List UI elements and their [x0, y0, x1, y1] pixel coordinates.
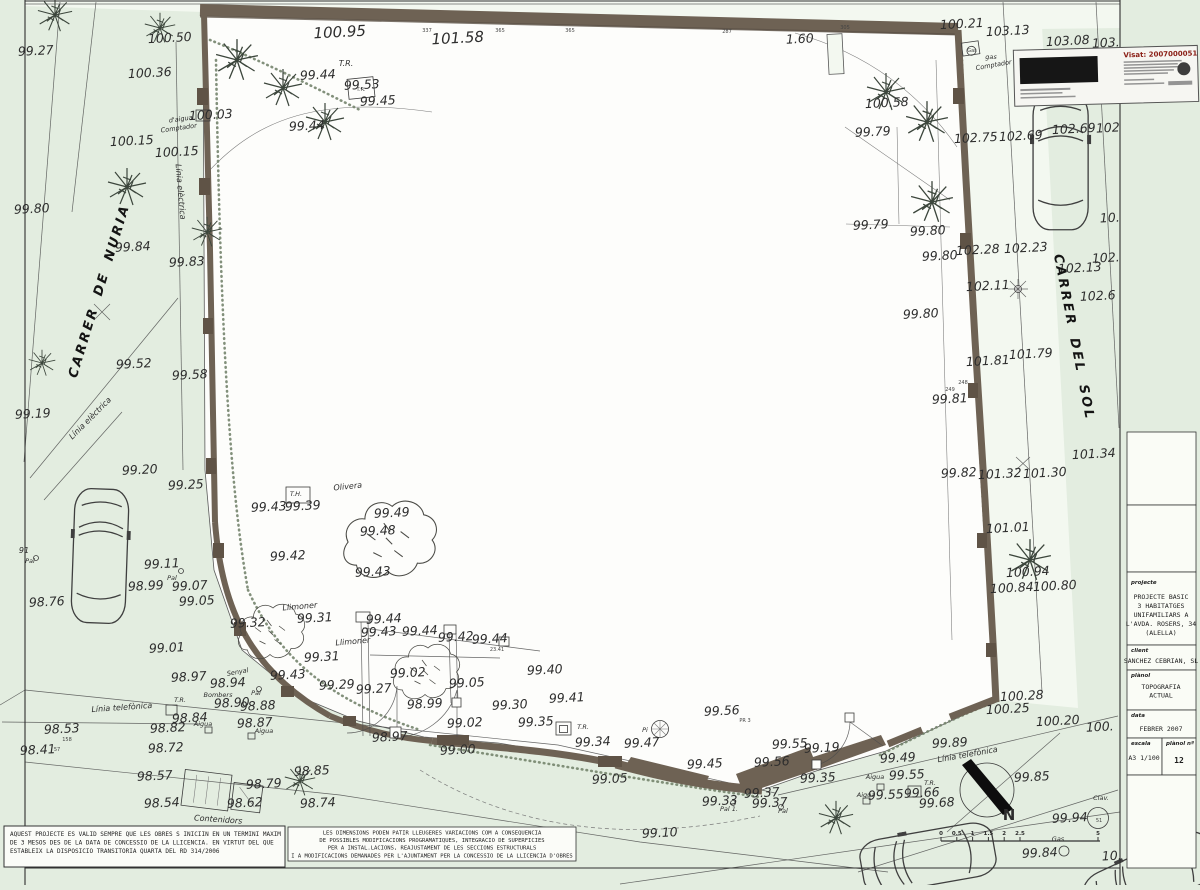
scale-tick-label: 2 — [1002, 831, 1006, 837]
elevation-label: 101.79 — [1009, 345, 1054, 362]
elevation-label: 99.05 — [178, 592, 215, 609]
elevation-label: 99.29 — [318, 676, 355, 693]
elevation-label: 99.07 — [171, 577, 208, 594]
feature-label: T.R. — [174, 696, 186, 704]
elevation-label: 100.58 — [865, 94, 910, 111]
gate-post — [845, 713, 854, 722]
elevation-label: 101.01 — [986, 519, 1030, 536]
elevation-label: 98.97 — [170, 668, 207, 685]
elevation-label: 99.80 — [921, 247, 958, 264]
elevation-label: 99.11 — [143, 555, 180, 572]
point-id-label: 305 — [840, 25, 850, 31]
elevation-label: 98.97 — [371, 728, 408, 745]
field-value-client: SANCHEZ CEBRIAN, SL — [1124, 657, 1198, 665]
elevation-label: 99.05 — [591, 770, 628, 787]
elevation-label: 102.6 — [1079, 287, 1116, 304]
point-id-label: 248 — [958, 380, 968, 386]
feature-label: T.H. — [290, 490, 302, 498]
elevation-label: 99.43 — [360, 623, 397, 640]
elevation-label: 99.32 — [229, 614, 266, 631]
elevation-label: 99.55 — [771, 735, 808, 752]
feature-label: Gas — [1052, 835, 1065, 843]
wall-gate-stub — [827, 34, 844, 75]
elevation-label: 99.80 — [902, 305, 939, 322]
scale-tick-label: 1 — [971, 831, 975, 837]
point-id-label: T.R. — [356, 87, 366, 93]
note-validity: AQUEST PROJECTE ES VALID SEMPRE QUE LES … — [4, 826, 285, 867]
scale-tick-label: 0.5 — [952, 831, 962, 837]
elevation-label: 101.30 — [1023, 464, 1068, 481]
elevation-label: 99.34 — [574, 733, 611, 750]
elevation-label: 99.79 — [854, 123, 891, 140]
elevation-label: 99.19 — [14, 405, 51, 422]
elevation-label: 99.42 — [437, 628, 474, 645]
elevation-label: 99.44 — [288, 117, 325, 134]
elevation-label: 100.20 — [1036, 712, 1081, 729]
elevation-label: 101.32 — [978, 465, 1023, 482]
elevation-label: 101.81 — [966, 352, 1010, 369]
feature-label: Pal — [167, 574, 177, 582]
scale-tick-label: 1.5 — [984, 831, 994, 837]
elevation-label: 98.72 — [147, 739, 184, 756]
elevation-label: 99.79 — [852, 216, 889, 233]
elevation-label: 99.43 — [250, 498, 287, 515]
visat-stamp: Visat: 2007000051 — [1013, 45, 1198, 106]
elevation-label: 99.89 — [931, 734, 968, 751]
elevation-label: 99.00 — [439, 741, 476, 758]
elevation-label: 99.27 — [355, 680, 392, 697]
elevation-label: 100.50 — [148, 29, 193, 46]
point-id-label: 287 — [722, 29, 732, 35]
elevation-label: 99.56 — [703, 702, 740, 719]
elevation-label: 101.58 — [431, 28, 484, 49]
elevation-label: 99.84 — [1021, 844, 1058, 861]
elevation-label: 98.41 — [19, 741, 56, 758]
elevation-label: 10. — [1101, 847, 1122, 863]
elevation-label: 98.82 — [149, 719, 186, 736]
elevation-label: 99.02 — [389, 664, 426, 681]
field-value-planol-num: 12 — [1174, 756, 1184, 765]
elevation-label: 99.05 — [448, 674, 485, 691]
point-id-label: 57 — [54, 747, 60, 753]
elevation-label: 100.36 — [128, 64, 173, 81]
elevation-label: 102.11 — [966, 277, 1010, 294]
field-label-client: client — [1131, 648, 1149, 654]
elevation-label: 98.99 — [406, 695, 443, 712]
elevation-label: 100.95 — [313, 22, 366, 43]
elevation-label: 102.69 — [1052, 120, 1097, 137]
elevation-label: 99.49 — [373, 504, 410, 521]
scale-tick-label: 5 — [1096, 831, 1100, 837]
elevation-label: 99.44 — [299, 66, 336, 83]
elevation-label: 100.94 — [1006, 563, 1051, 580]
elevation-label: 99.27 — [17, 42, 54, 59]
elevation-label: 102. — [1091, 249, 1120, 265]
elevation-label: 99.56 — [753, 753, 790, 770]
point-id-label: 249 — [945, 387, 955, 393]
elevation-label: 99.44 — [401, 622, 438, 639]
elevation-label: 103. — [1091, 34, 1120, 50]
elevation-label: 99.40 — [526, 661, 563, 678]
elevation-label: 99.52 — [115, 355, 152, 372]
elevation-label: 100.03 — [189, 106, 234, 123]
elevation-label: 102.75 — [954, 129, 999, 146]
feature-label: Pal — [25, 557, 35, 565]
feature-label: Pal — [778, 807, 788, 815]
elevation-label: 102.23 — [1004, 239, 1049, 256]
barcode — [1020, 56, 1099, 84]
elevation-label: 99.30 — [491, 696, 528, 713]
field-label-planol-num: plànol nº — [1165, 740, 1194, 747]
elevation-label: 103.08 — [1046, 32, 1091, 49]
elevation-label: 10. — [1099, 209, 1120, 225]
field-label-data: data — [1131, 713, 1145, 719]
elevation-label: 98.53 — [43, 720, 80, 737]
feature-label: T.R. — [339, 59, 354, 68]
elevation-label: 98.62 — [226, 794, 263, 811]
elevation-label: 99.20 — [121, 461, 158, 478]
elevation-label: 1.60 — [785, 30, 814, 46]
point-id-label: 365 — [565, 28, 575, 34]
feature-label: Pal 1. — [720, 805, 738, 813]
note-dimensions: LES DIMENSIONS PODEN PATIR LLEUGERES VAR… — [288, 827, 576, 861]
site-plan: N 00.511.522.55 AQUEST PROJECTE ES VALID… — [0, 0, 1200, 885]
elevation-label: 102.28 — [956, 241, 1001, 258]
point-id-label: PR 3 — [739, 718, 750, 724]
elevation-label: 99.55 — [888, 766, 925, 783]
feature-label: Aigua — [254, 727, 273, 735]
north-label: N — [1003, 806, 1016, 824]
field-label-planol: plànol — [1130, 672, 1150, 679]
elevation-label: 99.43 — [354, 563, 391, 580]
feature-label: T.R. — [924, 779, 936, 787]
elevation-label: 100.15 — [155, 143, 200, 160]
feature-label: Pi — [642, 726, 648, 734]
feature-label: Aigua — [865, 773, 884, 781]
elevation-label: 99.19 — [803, 739, 840, 756]
point-id-label: 158 — [62, 737, 72, 743]
feature-label: Aigua — [193, 720, 212, 728]
elevation-label: 99.31 — [303, 648, 340, 665]
elevation-label: 99.83 — [168, 253, 205, 270]
elevation-label: 99.31 — [296, 609, 333, 626]
elevation-label: 99.49 — [879, 749, 916, 766]
elevation-label: 99.39 — [284, 497, 321, 514]
elevation-label: 102.69 — [999, 127, 1044, 144]
point-id-label: Gas — [967, 48, 977, 54]
elevation-label: 99.02 — [446, 714, 483, 731]
elevation-label: 100. — [1085, 718, 1114, 734]
field-value-escala: A3 1/100 — [1128, 754, 1159, 762]
elevation-label: 100.25 — [986, 700, 1031, 717]
elevation-label: 99.10 — [641, 824, 678, 841]
elevation-label: 99.43 — [269, 666, 306, 683]
elevation-label: 99.01 — [148, 639, 185, 656]
elevation-label: 99.48 — [359, 522, 396, 539]
elevation-label: 98.88 — [239, 697, 276, 714]
field-label-escala: escala — [1131, 741, 1151, 747]
field-label-projecte: projecte — [1130, 580, 1157, 586]
elevation-label: 99.25 — [167, 476, 204, 493]
elevation-label: 98.85 — [293, 762, 330, 779]
feature-label: Pal — [251, 689, 261, 697]
gate-post — [452, 698, 461, 707]
elevation-label: 99.42 — [269, 547, 306, 564]
point-id-label: 365 — [495, 28, 505, 34]
point-id-label: 23.41 — [490, 647, 504, 653]
elevation-label: 99.94 — [1051, 809, 1088, 826]
elevation-label: 99.35 — [799, 769, 836, 786]
elevation-label: 102 — [1095, 119, 1120, 135]
elevation-label: 91 — [19, 546, 29, 555]
elevation-label: 101.34 — [1072, 445, 1117, 462]
elevation-label: 99.80 — [909, 222, 946, 239]
elevation-label: 98.76 — [28, 593, 65, 610]
elevation-label: 99.58 — [171, 366, 208, 383]
elevation-label: 99.68 — [918, 794, 955, 811]
elevation-label: 99.45 — [359, 92, 396, 109]
elevation-label: 99.45 — [686, 755, 723, 772]
point-id-label: 51 — [1096, 818, 1102, 824]
elevation-label: 99.44 — [471, 630, 508, 647]
elevation-label: 98.99 — [127, 577, 164, 594]
elevation-label: 99.82 — [940, 464, 977, 481]
elevation-label: 99.47 — [623, 734, 660, 751]
elevation-label: 99.41 — [548, 689, 585, 706]
elevation-label: 103.13 — [986, 22, 1031, 39]
elevation-label: 98.54 — [143, 794, 180, 811]
feature-label: Clav. — [1093, 794, 1109, 802]
elevation-label: 98.79 — [245, 775, 282, 792]
title-block: projecte PROJECTE BASIC3 HABITATGESUNIFA… — [1124, 432, 1198, 868]
elevation-label: 99.85 — [1013, 768, 1050, 785]
field-value-data: FEBRER 2007 — [1139, 725, 1182, 733]
scale-tick-label: 2.5 — [1015, 831, 1025, 837]
feature-label: Aigua — [856, 791, 875, 799]
elevation-label: 98.74 — [299, 794, 336, 811]
gate-post — [812, 760, 821, 769]
point-id-label: 337 — [422, 28, 432, 34]
elevation-label: 100.15 — [110, 132, 155, 149]
elevation-label: 98.57 — [136, 767, 173, 784]
feature-label: T.R. — [577, 723, 589, 731]
scale-tick-label: 0 — [939, 831, 943, 837]
elevation-label: 100.80 — [1033, 577, 1078, 594]
elevation-label: 99.80 — [13, 200, 50, 217]
elevation-label: 100.21 — [940, 15, 984, 32]
elevation-label: 100.84 — [990, 579, 1035, 596]
note-dimensions-text: LES DIMENSIONS PODEN PATIR LLEUGERES VAR… — [291, 831, 572, 860]
elevation-label: 99.35 — [517, 713, 554, 730]
